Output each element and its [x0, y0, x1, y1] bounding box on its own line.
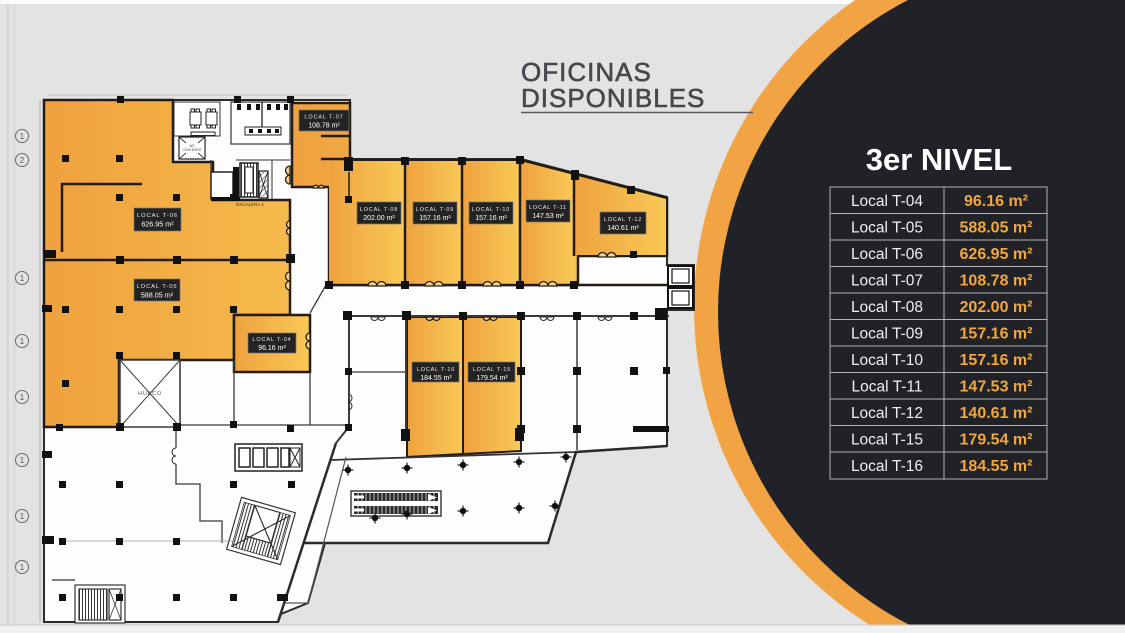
svg-text:LOCAL T-04: LOCAL T-04 [252, 337, 291, 343]
svg-text:140.61 m²: 140.61 m² [960, 405, 1033, 422]
svg-text:LOCAL T-07: LOCAL T-07 [304, 115, 343, 121]
svg-text:Local T-05: Local T-05 [851, 220, 923, 237]
svg-text:1: 1 [20, 563, 25, 572]
svg-text:157.16 m²: 157.16 m² [419, 215, 451, 222]
svg-text:140.61 m²: 140.61 m² [607, 225, 639, 232]
svg-text:157.16 m²: 157.16 m² [475, 215, 507, 222]
svg-text:LOCAL T-12: LOCAL T-12 [604, 217, 642, 223]
svg-text:CONCIERGE: CONCIERGE [182, 148, 201, 152]
svg-text:Local T-06: Local T-06 [851, 246, 923, 263]
svg-text:179.54 m²: 179.54 m² [960, 432, 1033, 449]
svg-text:Local T-16: Local T-16 [851, 458, 923, 475]
svg-text:96.16 m²: 96.16 m² [258, 345, 286, 352]
svg-text:DISPONIBLES: DISPONIBLES [521, 83, 705, 113]
svg-text:96.16 m²: 96.16 m² [964, 193, 1028, 210]
svg-text:157.16 m²: 157.16 m² [960, 326, 1033, 343]
svg-text:1: 1 [20, 456, 25, 465]
svg-text:LOCAL T-10: LOCAL T-10 [472, 207, 510, 213]
svg-text:588.05 m²: 588.05 m² [141, 291, 174, 300]
svg-text:179.54 m²: 179.54 m² [476, 375, 508, 382]
svg-text:Local T-04: Local T-04 [851, 193, 923, 210]
svg-text:202.00 m²: 202.00 m² [960, 299, 1033, 316]
svg-text:Local T-11: Local T-11 [852, 379, 923, 396]
svg-text:2: 2 [20, 156, 25, 165]
svg-text:3er NIVEL: 3er NIVEL [866, 142, 1012, 177]
svg-text:LOCAL T-09: LOCAL T-09 [416, 207, 454, 213]
svg-text:202.00 m²: 202.00 m² [363, 215, 395, 222]
svg-text:1: 1 [20, 512, 25, 521]
svg-text:108.78 m²: 108.78 m² [308, 123, 340, 130]
svg-text:LOCAL T-06: LOCAL T-06 [137, 213, 178, 219]
svg-text:147.53 m²: 147.53 m² [960, 379, 1033, 396]
svg-text:184.55 m²: 184.55 m² [960, 458, 1033, 475]
svg-text:1: 1 [20, 337, 25, 346]
svg-text:LOCAL T-11: LOCAL T-11 [529, 205, 567, 211]
svg-text:Local T-07: Local T-07 [851, 273, 923, 290]
svg-text:1: 1 [20, 132, 25, 141]
svg-text:LOCAL T-05: LOCAL T-05 [137, 284, 178, 290]
svg-text:LOCAL T-16: LOCAL T-16 [417, 367, 455, 373]
svg-text:626.95 m²: 626.95 m² [141, 220, 174, 229]
svg-text:Local T-15: Local T-15 [851, 432, 923, 449]
svg-text:1: 1 [20, 393, 25, 402]
svg-text:184.55 m²: 184.55 m² [420, 375, 452, 382]
svg-text:Local T-08: Local T-08 [851, 299, 923, 316]
svg-text:Local T-09: Local T-09 [851, 326, 923, 343]
svg-text:626.95 m²: 626.95 m² [960, 246, 1033, 263]
svg-text:LOCAL T-15: LOCAL T-15 [473, 367, 511, 373]
svg-text:Local T-10: Local T-10 [851, 352, 923, 369]
svg-text:108.78 m²: 108.78 m² [960, 273, 1033, 290]
svg-text:HUECO: HUECO [138, 391, 162, 397]
svg-text:1: 1 [20, 274, 25, 283]
svg-text:588.05 m²: 588.05 m² [960, 220, 1033, 237]
svg-text:147.53 m²: 147.53 m² [532, 213, 564, 220]
svg-text:157.16 m²: 157.16 m² [960, 352, 1033, 369]
svg-text:LOCAL T-08: LOCAL T-08 [360, 207, 398, 213]
svg-text:ESCALERA 4: ESCALERA 4 [236, 202, 264, 207]
svg-text:Local T-12: Local T-12 [851, 405, 923, 422]
